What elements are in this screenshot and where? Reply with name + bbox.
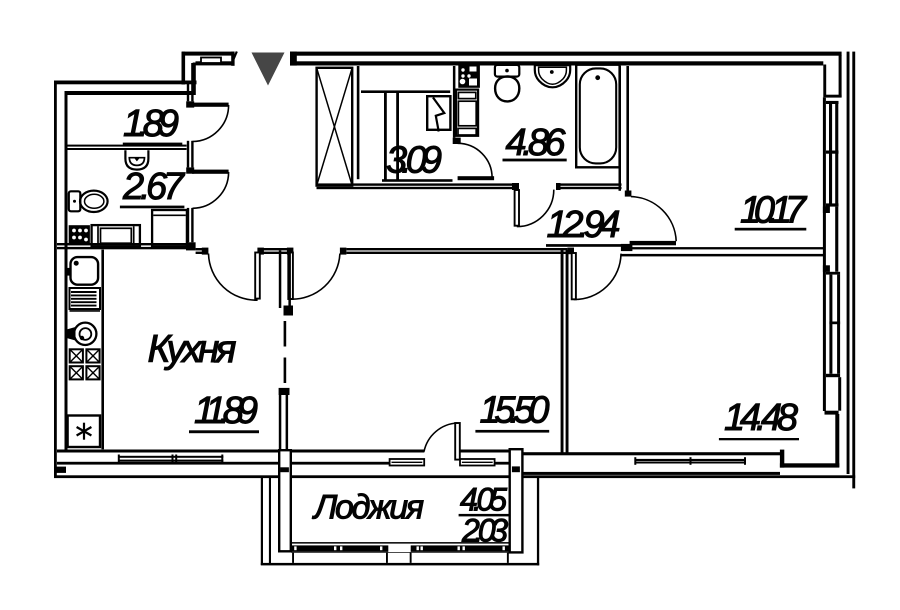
svg-text:10.17: 10.17 [740, 190, 808, 232]
svg-text:Кухня: Кухня [148, 328, 237, 371]
svg-text:3.09: 3.09 [386, 140, 442, 182]
svg-text:2.03: 2.03 [461, 513, 508, 549]
svg-text:Лоджия: Лоджия [312, 489, 424, 527]
svg-text:1.89: 1.89 [123, 103, 179, 145]
svg-text:4.86: 4.86 [506, 122, 567, 164]
svg-text:14.48: 14.48 [724, 397, 798, 439]
svg-text:11.89: 11.89 [194, 390, 258, 432]
svg-text:15.50: 15.50 [480, 390, 550, 432]
svg-text:2.67: 2.67 [122, 166, 186, 208]
svg-text:12.94: 12.94 [547, 204, 621, 246]
